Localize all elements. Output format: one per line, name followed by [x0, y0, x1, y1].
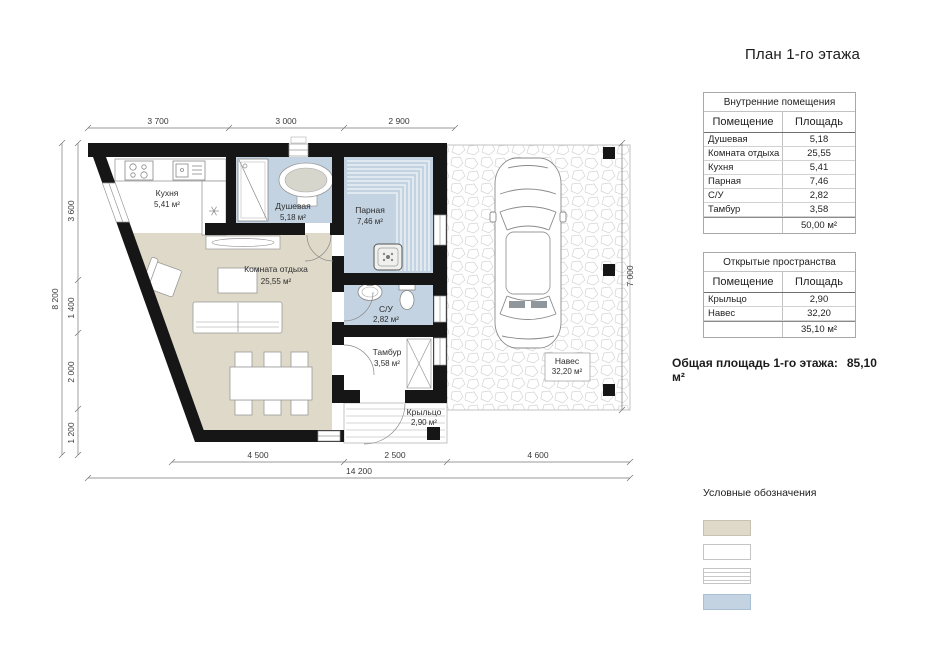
col-area: Площадь	[783, 272, 855, 292]
closet	[407, 339, 431, 388]
legend-item-open: Открытая зона	[703, 568, 751, 584]
lounge-label: Комната отдыха	[244, 264, 308, 274]
table-row: Кухня 5,41	[704, 161, 855, 175]
porch-area-label: 2,90 м²	[411, 418, 437, 427]
table-header: Открытые пространства	[704, 253, 855, 272]
dim-top-1: 3 700	[147, 116, 169, 126]
internal-rooms-table: Внутренние помещения Помещение Площадь Д…	[703, 92, 856, 234]
legend-swatch-residential-zone	[703, 520, 751, 536]
dim-bottom-3: 4 600	[527, 450, 549, 460]
legend-item-common: Общая зона	[703, 544, 751, 560]
legend-title: Условные обозначения	[703, 487, 816, 499]
legend-swatch-wet-zone	[703, 594, 751, 610]
col-area: Площадь	[783, 112, 855, 132]
legend-swatch-open-zone	[703, 568, 751, 584]
floor-plan-drawing: Навес 32,20 м²	[0, 0, 700, 662]
dim-bottom-total: 14 200	[346, 466, 372, 476]
stove-icon	[125, 161, 153, 180]
table-row: Душевая 5,18	[704, 133, 855, 147]
area-cell: 3,58	[783, 203, 855, 216]
canopy-area: 32,20 м²	[552, 367, 583, 376]
area-cell: 25,55	[783, 147, 855, 160]
room-cell: Душевая	[704, 133, 783, 146]
col-room: Помещение	[704, 112, 783, 132]
table-row: Парная 7,46	[704, 175, 855, 189]
table-row: Навес 32,20	[704, 307, 855, 321]
room-cell: Крыльцо	[704, 293, 783, 306]
table-total-row: 35,10 м²	[704, 321, 855, 337]
floor-plan-page: Навес 32,20 м²	[0, 0, 936, 662]
carport-area: Навес 32,20 м²	[447, 145, 630, 410]
area-cell: 32,20	[783, 307, 855, 320]
dim-bottom-2: 2 500	[384, 450, 406, 460]
kitchen-label: Кухня	[156, 188, 179, 198]
sauna-stove	[374, 244, 402, 270]
legend-swatch-common-zone	[703, 544, 751, 560]
area-cell: 2,90	[783, 293, 855, 306]
shower-label: Душевая	[275, 201, 311, 211]
table-row: Комната отдыха 25,55	[704, 147, 855, 161]
porch-post	[427, 427, 440, 440]
room-cell: Парная	[704, 175, 783, 188]
table-total-row: 50,00 м²	[704, 217, 855, 233]
vestibule-area: 3,58 м²	[374, 359, 400, 368]
shower-area: 5,18 м²	[280, 213, 306, 222]
room-cell: С/У	[704, 189, 783, 202]
area-cell: 2,82	[783, 189, 855, 202]
toilet-icon	[399, 283, 415, 310]
dim-left-4: 1 200	[66, 422, 76, 444]
dim-left-total: 8 200	[50, 288, 60, 310]
wc-label: С/У	[379, 304, 394, 314]
open-spaces-table: Открытые пространства Помещение Площадь …	[703, 252, 856, 338]
table-header: Внутренние помещения	[704, 93, 855, 112]
carport-post	[603, 384, 615, 396]
page-title: План 1-го этажа	[700, 46, 860, 63]
area-cell: 5,41	[783, 161, 855, 174]
total-area-cell: 35,10 м²	[783, 322, 855, 337]
shower-cabin	[238, 159, 268, 221]
area-cell: 7,46	[783, 175, 855, 188]
sideboard	[206, 236, 280, 249]
dim-top-3: 2 900	[388, 116, 410, 126]
vestibule-label: Тамбур	[373, 347, 402, 357]
table-column-headers: Помещение Площадь	[704, 112, 855, 133]
col-room: Помещение	[704, 272, 783, 292]
table-row: Тамбур 3,58	[704, 203, 855, 217]
vestibule-door-arc	[344, 345, 374, 375]
total-area-summary: Общая площадь 1-го этажа:85,10 м²	[672, 356, 892, 384]
room-cell: Тамбур	[704, 203, 783, 216]
canopy-label: Навес	[555, 356, 580, 366]
dim-left-3: 2 000	[66, 361, 76, 383]
dining-set	[230, 352, 312, 415]
carport-post	[603, 264, 615, 276]
table-row: С/У 2,82	[704, 189, 855, 203]
lounge-area: 25,55 м²	[261, 277, 292, 286]
sink-icon	[173, 161, 205, 180]
wc-area: 2,82 м²	[373, 315, 399, 324]
table-column-headers: Помещение Площадь	[704, 272, 855, 293]
dim-left-1: 3 600	[66, 200, 76, 222]
area-cell: 5,18	[783, 133, 855, 146]
sofa	[193, 302, 282, 333]
kitchen-area: 5,41 м²	[154, 200, 180, 209]
dining-table	[230, 367, 312, 400]
dim-left-2: 1 400	[66, 297, 76, 319]
room-cell: Кухня	[704, 161, 783, 174]
dim-bottom-1: 4 500	[247, 450, 269, 460]
window-sill	[291, 137, 306, 143]
legend-item-residential: Жилая зона	[703, 520, 751, 536]
dim-right: 7 000	[625, 265, 635, 287]
dim-top-2: 3 000	[275, 116, 297, 126]
porch-label: Крыльцо	[407, 407, 442, 417]
legend-item-wet: Мокрая зона	[703, 594, 751, 610]
sauna-label: Парная	[355, 205, 385, 215]
car-icon	[490, 158, 566, 348]
table-row: Крыльцо 2,90	[704, 293, 855, 307]
room-cell: Комната отдыха	[704, 147, 783, 160]
summary-label: Общая площадь 1-го этажа:	[672, 356, 838, 370]
total-area-cell: 50,00 м²	[783, 218, 855, 233]
carport-post	[603, 147, 615, 159]
room-cell: Навес	[704, 307, 783, 320]
sauna-area: 7,46 м²	[357, 217, 383, 226]
